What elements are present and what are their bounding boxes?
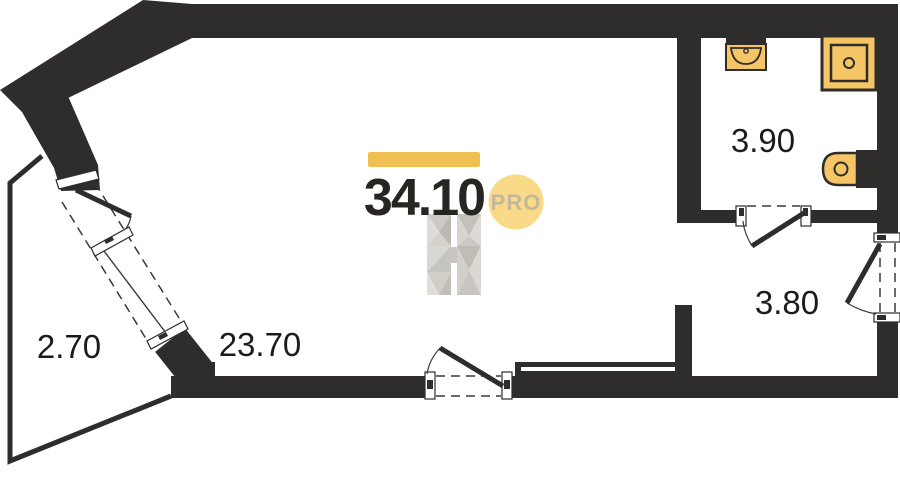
wall-bottom-left bbox=[171, 376, 435, 398]
entrance-door bbox=[847, 233, 900, 322]
bathroom-door bbox=[736, 206, 811, 246]
pro-badge: PRO bbox=[489, 175, 544, 230]
wall-bath-left bbox=[677, 38, 701, 223]
balcony-glass-line bbox=[101, 247, 169, 337]
wall-shaft-seam bbox=[521, 367, 685, 371]
door3-tick-top bbox=[877, 235, 886, 240]
living-room-door bbox=[425, 348, 512, 399]
balcony-opening-dash-outer bbox=[62, 202, 148, 342]
shower-icon bbox=[822, 36, 876, 90]
toilet-cistern bbox=[856, 150, 878, 188]
bathroom-area-label: 3.90 bbox=[731, 122, 795, 159]
balcony-area-label: 2.70 bbox=[37, 328, 101, 365]
wall-right-lower bbox=[877, 322, 898, 398]
wall-niche bbox=[856, 188, 877, 209]
balcony-window-pane bbox=[91, 227, 133, 256]
total-area-label: 34.10 bbox=[364, 169, 484, 227]
door3-leaf bbox=[847, 244, 880, 303]
balcony-door-leaf bbox=[76, 190, 131, 216]
wall-bottom-right bbox=[502, 376, 898, 398]
hallway-area-label: 3.80 bbox=[755, 284, 819, 321]
floorplan-canvas: 34.10 PRO 2.70 23.70 3.90 3.80 bbox=[0, 0, 900, 490]
living-room-area-label: 23.70 bbox=[219, 326, 302, 363]
door3-tick-bottom bbox=[877, 315, 886, 320]
sink-counter bbox=[726, 36, 766, 44]
accent-bar bbox=[368, 152, 480, 167]
wall-diagonal-nw bbox=[0, 0, 192, 98]
toilet-bowl bbox=[823, 153, 857, 185]
door1-tick-left bbox=[427, 380, 433, 389]
toilet-icon bbox=[823, 150, 878, 188]
wall-right-upper bbox=[877, 4, 898, 233]
pro-badge-label: PRO bbox=[491, 190, 542, 215]
floorplan-svg: 34.10 PRO 2.70 23.70 3.90 3.80 bbox=[0, 0, 900, 490]
wall-step-block bbox=[195, 362, 215, 378]
door3-arc bbox=[847, 303, 876, 314]
wall-west-lower-stub bbox=[170, 340, 197, 374]
door2-leaf bbox=[752, 213, 804, 246]
balcony-glazing bbox=[56, 170, 188, 349]
door1-leaf bbox=[440, 348, 503, 386]
door1-arc bbox=[427, 348, 440, 374]
sink-icon bbox=[726, 36, 766, 70]
door2-tick-left bbox=[739, 208, 744, 216]
wall-hall-partition bbox=[675, 305, 692, 378]
door1-tick-right bbox=[504, 380, 510, 389]
wall-bath-bottom-left bbox=[677, 210, 742, 223]
wall-top bbox=[192, 4, 898, 38]
